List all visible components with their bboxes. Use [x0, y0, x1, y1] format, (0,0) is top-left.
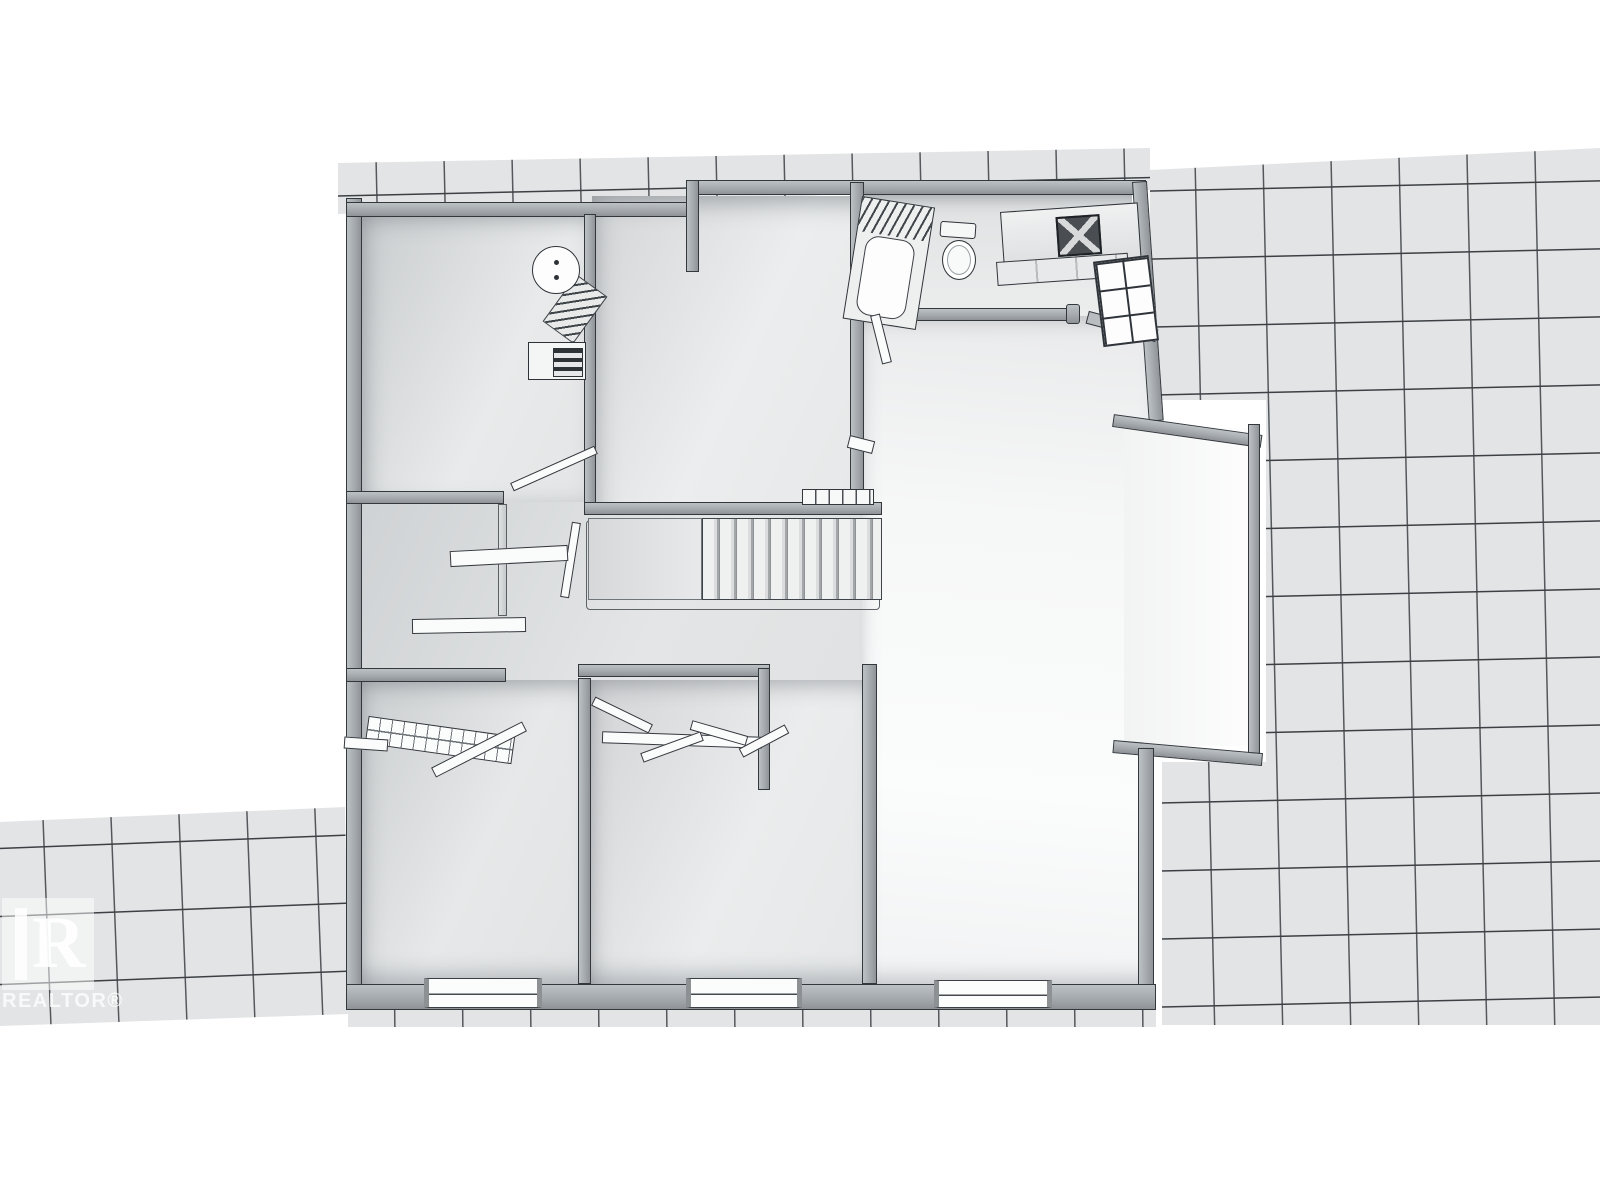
shelf-plank	[412, 617, 526, 634]
window-icon	[934, 980, 1052, 1008]
wall-exterior-left	[346, 198, 362, 1010]
wall-exterior-top-left	[346, 202, 694, 217]
wall-bedroom-divider-right	[862, 664, 877, 984]
realtor-logo-bar	[15, 908, 27, 980]
furnace-vents	[553, 348, 583, 377]
sink-icon	[1055, 214, 1102, 257]
water-heater-fitting	[554, 260, 559, 265]
stair-railing	[802, 489, 874, 505]
water-heater-icon	[532, 246, 580, 294]
window-icon	[686, 978, 802, 1008]
stair-landing	[588, 518, 702, 600]
wall-closet2-front	[578, 664, 770, 677]
wall-stub-upper	[346, 491, 504, 504]
furnace-icon	[528, 342, 586, 380]
wall-top-jog	[686, 180, 699, 272]
toilet-bowl-icon	[942, 240, 976, 280]
wall-bathroom-end-post	[1066, 304, 1080, 324]
bathtub-basin	[855, 234, 917, 321]
bathroom-window-icon	[1093, 255, 1159, 347]
window-icon	[424, 978, 542, 1008]
wall-exterior-top-right	[686, 180, 1146, 195]
realtor-watermark: R REALTOR®	[2, 898, 132, 1020]
realtor-logo-letter: R	[32, 906, 85, 980]
toilet-tank-icon	[939, 221, 976, 239]
floor-right-room	[858, 316, 1148, 988]
wall-stub-lower	[346, 668, 506, 682]
floor-bedroom-middle	[590, 680, 864, 988]
wall-bay-right	[1248, 424, 1260, 754]
wall-closet2-side	[758, 668, 770, 790]
realtor-watermark-label: REALTOR®	[2, 990, 124, 1013]
floor-middle-room	[592, 196, 854, 510]
wall-exterior-right-lower	[1138, 748, 1154, 1010]
staircase	[702, 518, 882, 600]
wall-bedroom-divider-left	[578, 678, 591, 984]
floor-bay-bump	[1124, 428, 1252, 746]
water-heater-fitting	[554, 275, 559, 280]
floor-plan-render: R REALTOR®	[0, 0, 1600, 1200]
